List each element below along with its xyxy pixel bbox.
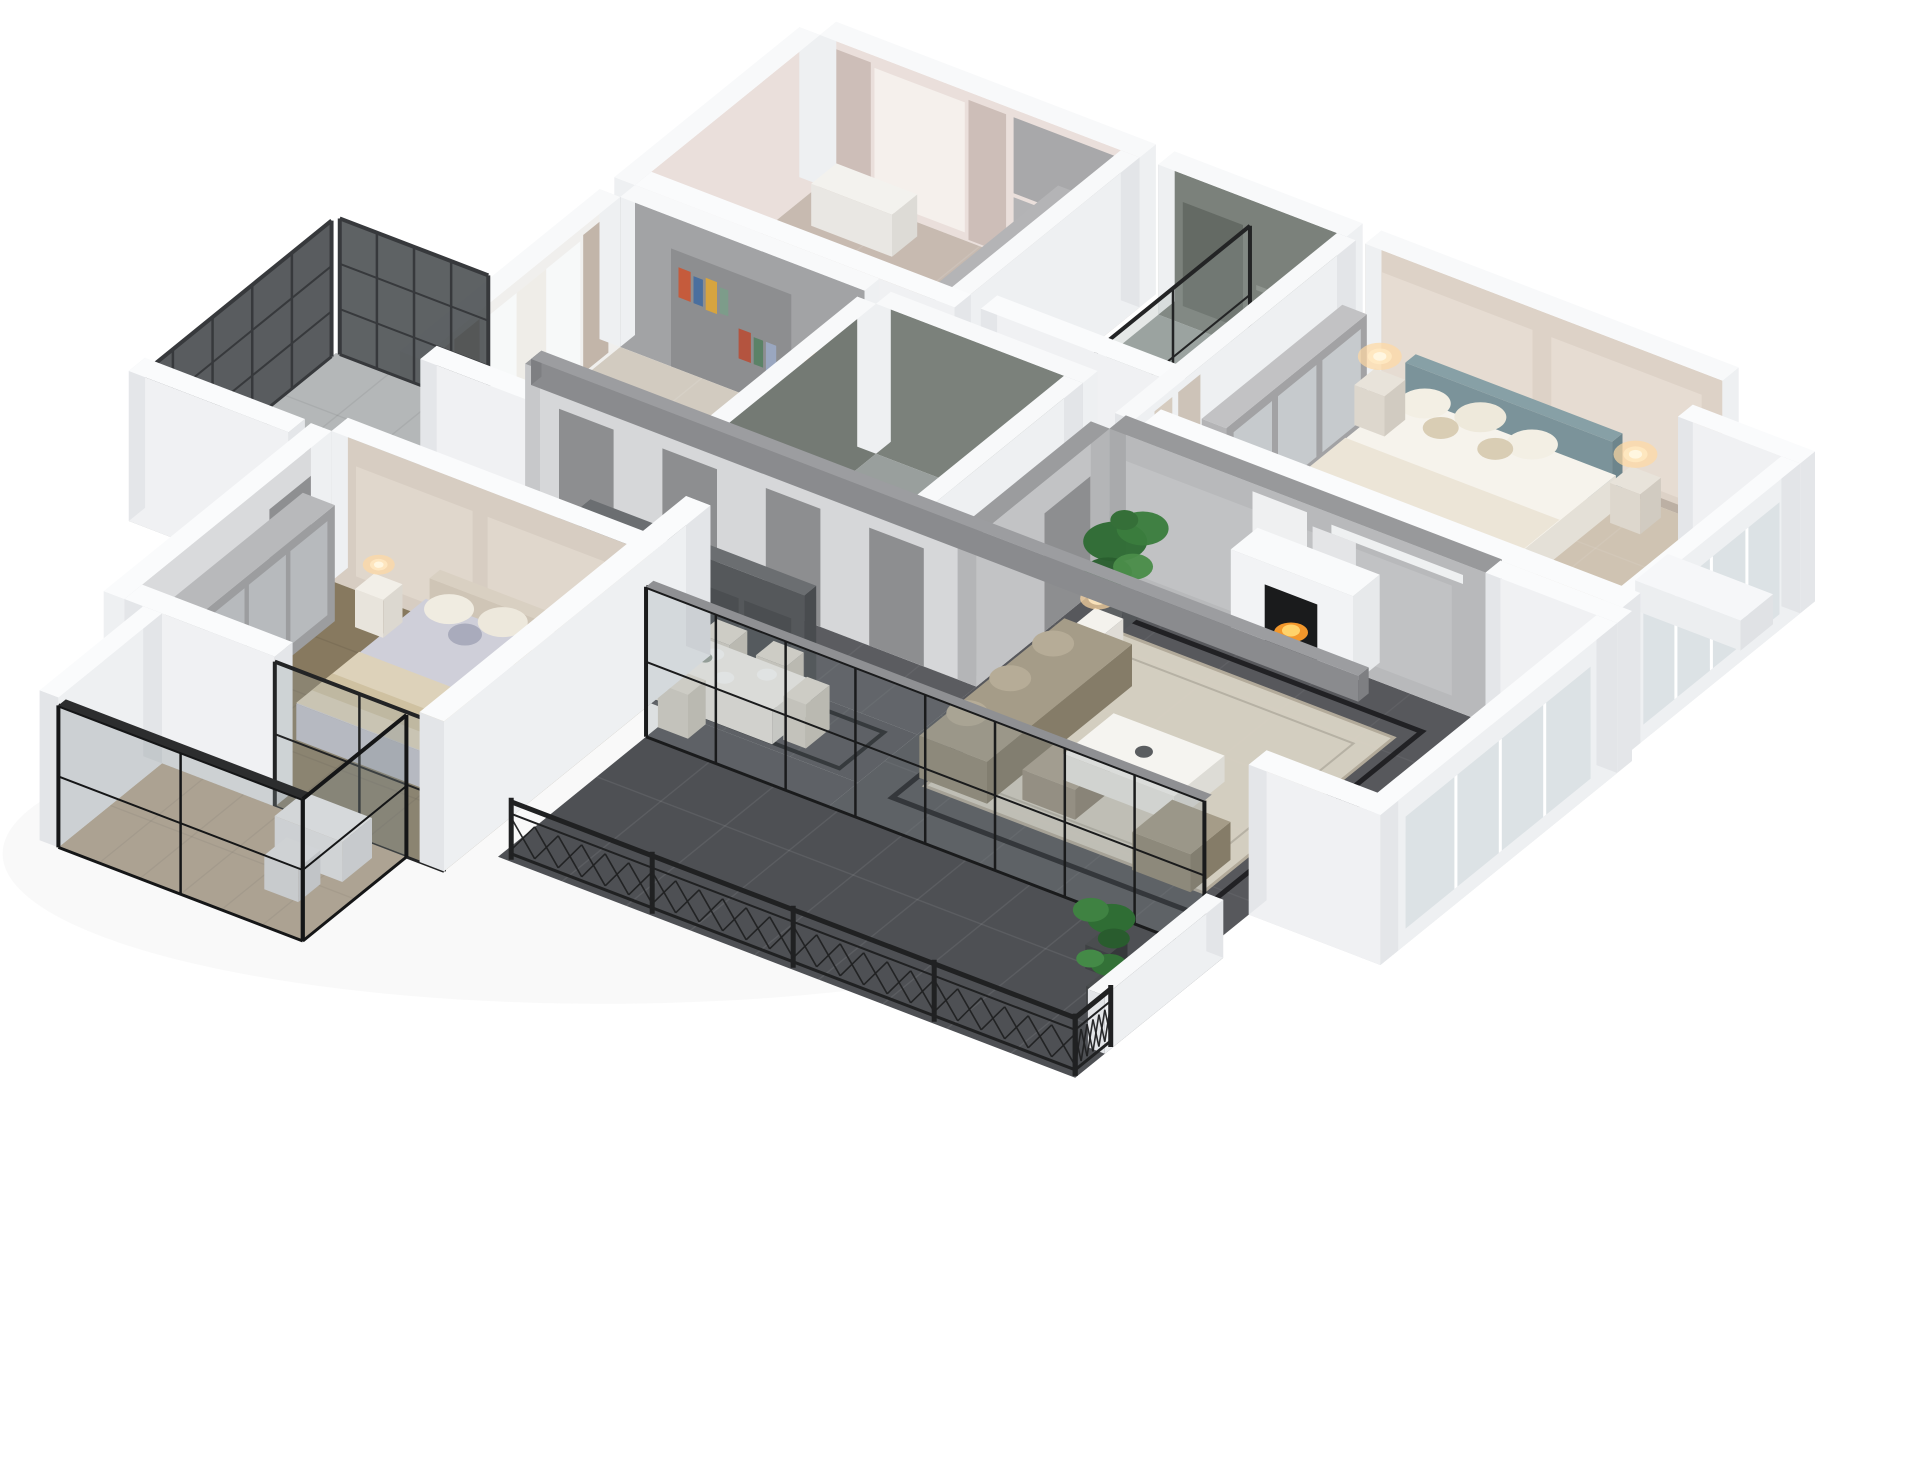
bedroom3-pillow [1506,430,1558,460]
master-pillow [448,624,482,646]
coffee-table-decor [1135,746,1153,758]
sofa-cushion [1032,630,1074,656]
living-plant-leaf [1110,510,1138,530]
floorplan-viewport [0,0,1920,1468]
master-lamp [363,555,395,575]
terrace-plant-leaf [1098,928,1130,948]
bedroom3-pillow [1423,417,1459,439]
bedroom3-pillow [1454,402,1506,432]
bedroom3-lamp-left [1358,343,1402,370]
terrace-plant-leaf [1076,950,1104,968]
sofa-cushion [989,665,1031,691]
bedroom3-pillow [1477,438,1513,460]
bedroom3-pillow [1399,388,1451,418]
bedroom3-lamp-right [1613,441,1657,468]
floorplan-render-svg [0,0,1920,1468]
fireplace-fire-core [1282,624,1300,636]
master-pillow [424,594,474,624]
terrace-plant-leaf [1073,898,1109,922]
